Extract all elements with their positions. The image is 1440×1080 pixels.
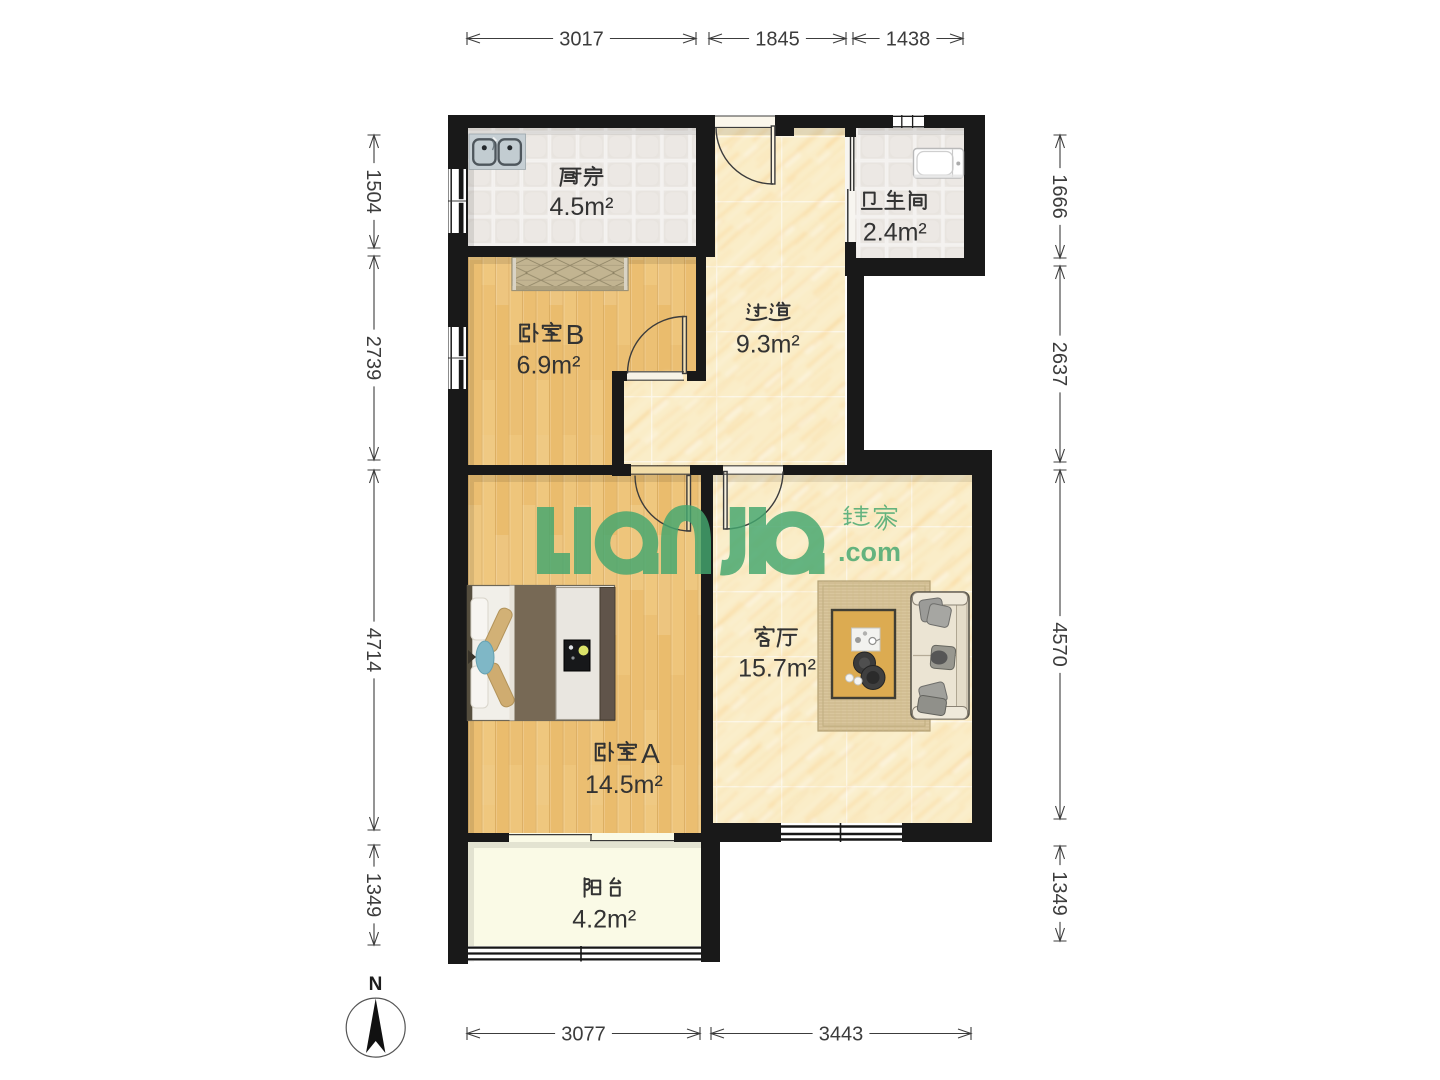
svg-text:A: A <box>641 738 660 769</box>
svg-text:1349: 1349 <box>1048 871 1070 916</box>
svg-text:6.9m²: 6.9m² <box>517 352 581 380</box>
svg-text:N: N <box>369 974 383 995</box>
svg-text:1349: 1349 <box>362 873 384 918</box>
svg-text:1666: 1666 <box>1048 174 1070 219</box>
svg-text:4570: 4570 <box>1048 622 1070 667</box>
svg-text:4714: 4714 <box>362 628 384 673</box>
svg-text:4.2m²: 4.2m² <box>572 906 636 934</box>
svg-text:1845: 1845 <box>755 29 800 51</box>
svg-text:B: B <box>566 319 585 350</box>
svg-text:2.4m²: 2.4m² <box>863 219 927 247</box>
svg-text:15.7m²: 15.7m² <box>738 654 816 682</box>
svg-text:1438: 1438 <box>886 29 931 51</box>
svg-text:2739: 2739 <box>362 336 384 381</box>
svg-text:3077: 3077 <box>561 1024 606 1046</box>
svg-text:3443: 3443 <box>819 1024 864 1046</box>
svg-text:2637: 2637 <box>1048 342 1070 387</box>
svg-text:1504: 1504 <box>362 169 384 214</box>
svg-text:14.5m²: 14.5m² <box>585 771 663 799</box>
svg-text:9.3m²: 9.3m² <box>736 331 800 359</box>
svg-text:3017: 3017 <box>559 29 604 51</box>
svg-text:4.5m²: 4.5m² <box>550 193 614 221</box>
svg-text:.com: .com <box>838 537 901 567</box>
